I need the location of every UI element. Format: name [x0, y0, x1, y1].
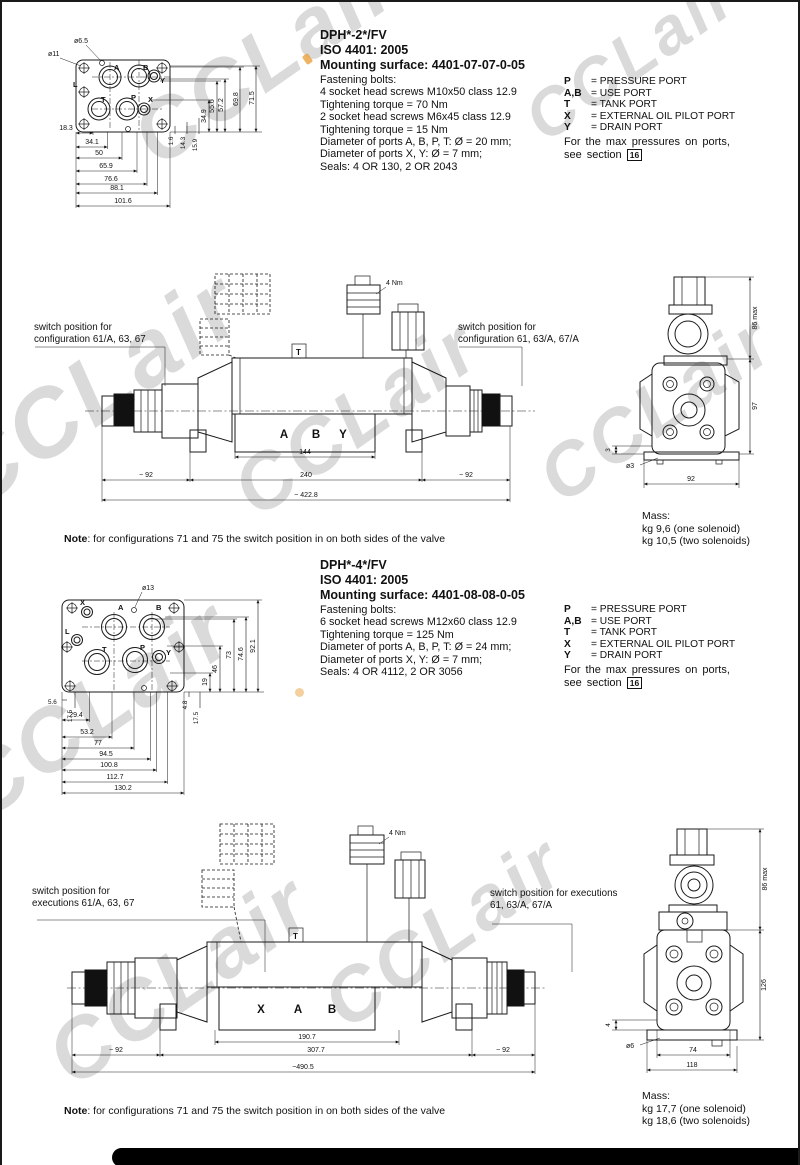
port-letter-T: T — [101, 95, 106, 104]
end-view-body — [640, 363, 739, 464]
dim-126: 126 — [761, 979, 768, 991]
section2-max-pressure-note: For the max pressures on ports, see sect… — [564, 664, 779, 690]
valve-body: T X A B — [177, 928, 452, 1030]
port-letter-Y: Y — [166, 648, 171, 657]
port-key: A,B — [564, 88, 591, 100]
dim-92-right: ~ 92 — [459, 472, 473, 479]
section2-specs: Fastening bolts: 6 socket head screws M1… — [320, 604, 517, 678]
spec-line: Fastening bolts: — [320, 604, 517, 616]
switch-label-line: configuration 61/A, 63, 67 — [34, 334, 146, 346]
spec-line: 6 socket head screws M12x60 class 12.9 — [320, 616, 517, 628]
dim-92-right: ~ 92 — [496, 1047, 510, 1054]
port-letter-L: L — [65, 627, 70, 636]
switch-position-label-left-2: switch position for executions 61/A, 63,… — [32, 886, 134, 909]
dim-65-9: 65.9 — [99, 163, 113, 170]
port-desc: = USE PORT — [591, 616, 652, 627]
torque-label: 4 Nm — [386, 280, 403, 287]
mass-one-solenoid: kg 9,6 (one solenoid) — [642, 523, 750, 536]
body-letter: A — [280, 429, 290, 441]
dim-240: 240 — [300, 472, 312, 479]
din-connector-dashed — [215, 274, 270, 314]
datasheet-page: CCLair CCLair CCLair CCLair CCLair CCLai… — [0, 0, 800, 1165]
dia11-label: ø11 — [48, 51, 60, 58]
legend-row: X= EXTERNAL OIL PILOT PORT — [564, 639, 735, 651]
port-desc: = USE PORT — [591, 88, 652, 99]
dim-15-9: 15.9 — [192, 138, 199, 151]
port-letter-B: B — [143, 63, 149, 72]
port-key: X — [564, 111, 591, 123]
dimensions: 144 240 ~ 92 ~ 92 ~ 422.8 — [102, 426, 510, 502]
spec-line: Seals: 4 OR 130, 2 OR 2043 — [320, 161, 517, 173]
dim-307-7: 307.7 — [307, 1047, 325, 1054]
section1-mass: Mass: kg 9,6 (one solenoid) kg 10,5 (two… — [642, 510, 750, 548]
hole-leaders: ø13 — [135, 585, 154, 607]
manual-override-dashed — [200, 319, 236, 358]
see-section-text: see section — [564, 149, 622, 161]
body-letter: B — [328, 1004, 338, 1016]
solenoid-connector-right — [392, 304, 424, 358]
switch-label-line: executions 61/A, 63, 67 — [32, 898, 134, 910]
dim-29-4: 29.4 — [69, 712, 83, 719]
port-letter-P: P — [131, 93, 136, 102]
dim-57-2: 57.2 — [218, 98, 225, 112]
mounting-surface-drawing-iso4401-08: X A B L T P Y ø13 19 46 73 74. — [42, 582, 312, 807]
port-desc: = DRAIN PORT — [591, 650, 662, 661]
port-letter-T: T — [102, 645, 107, 654]
dim-190-7: 190.7 — [298, 1034, 316, 1041]
switch-leader-right — [492, 924, 572, 972]
dim-101-6: 101.6 — [114, 198, 132, 205]
dim-74: 74 — [689, 1047, 697, 1054]
dim-94-5: 94.5 — [99, 751, 113, 758]
dim-88-1: 88.1 — [110, 185, 124, 192]
legend-row: Y= DRAIN PORT — [564, 650, 735, 662]
dim-118: 118 — [686, 1062, 697, 1069]
coil-plug — [347, 276, 380, 358]
spec-line: Diameter of ports A, B, P, T: Ø = 24 mm; — [320, 641, 517, 653]
switch-label-line: configuration 61, 63/A, 67/A — [458, 334, 579, 346]
port-key: X — [564, 639, 591, 651]
pilot-block-left — [160, 1004, 176, 1030]
max-pressure-line1: For the max pressures on ports, — [564, 136, 779, 149]
iso-standard: ISO 4401: 2005 — [320, 573, 525, 588]
switch-label-line: 61, 63/A, 67/A — [490, 900, 617, 912]
mass-two-solenoids: kg 18,6 (two solenoids) — [642, 1115, 750, 1128]
legend-row: P= PRESSURE PORT — [564, 604, 735, 616]
body-letter: B — [312, 429, 322, 441]
dim-92: 92 — [687, 476, 695, 483]
t-mark: T — [296, 348, 301, 357]
note-bold: Note — [64, 1105, 87, 1117]
dim-53-2: 53.2 — [80, 729, 94, 736]
dim-18-3: 18.3 — [59, 125, 73, 132]
valve-front-view-dph4: 4 Nm T X A B — [27, 814, 577, 1089]
dim-69-8: 69.8 — [233, 92, 240, 106]
switch-label-line: switch position for — [458, 322, 579, 334]
dim-4-8: 4.8 — [182, 700, 189, 709]
section2-title-block: DPH*-4*/FV ISO 4401: 2005 Mounting surfa… — [320, 558, 525, 603]
spec-line: Diameter of ports X, Y: Ø = 7 mm; — [320, 148, 517, 160]
port-key: P — [564, 604, 591, 616]
spec-line: Tightening torque = 125 Nm — [320, 629, 517, 641]
note-text: : for configurations 71 and 75 the switc… — [87, 533, 445, 545]
dim-34-9: 34.9 — [201, 109, 208, 123]
spec-line: Fastening bolts: — [320, 74, 517, 86]
valve-end-view-dph4: 86 max 126 4 ø6 74 118 — [602, 817, 800, 1079]
switch-position-label-right-1: switch position for configuration 61, 63… — [458, 322, 579, 345]
t-mark: T — [293, 932, 298, 941]
torque-leader — [376, 287, 386, 294]
dia13-label: ø13 — [142, 585, 154, 592]
mounting-surface: Mounting surface: 4401-07-07-0-05 — [320, 58, 525, 73]
solenoid-connector-right — [395, 852, 425, 942]
dim-55-6: 55.6 — [209, 99, 216, 113]
port-key: P — [564, 76, 591, 88]
max-pressure-line2: see section 16 — [564, 149, 779, 162]
switch-leader-left — [37, 920, 265, 972]
section1-port-legend: P= PRESSURE PORT A,B= USE PORT T= TANK P… — [564, 76, 735, 134]
section1-max-pressure-note: For the max pressures on ports, see sect… — [564, 136, 779, 162]
note-bold: Note — [64, 533, 87, 545]
dim-490-5: ~490.5 — [292, 1064, 314, 1071]
section2-note: Note: for configurations 71 and 75 the s… — [64, 1105, 445, 1117]
max-pressure-line2: see section 16 — [564, 677, 779, 690]
dim-86max: 86 max — [762, 867, 769, 890]
port-letter-B: B — [156, 603, 162, 612]
horizontal-dimensions: 5.6 17.5 29.4 53.2 77 94.5 100.8 112.7 — [48, 692, 184, 795]
dim-50: 50 — [95, 150, 103, 157]
mounting-surface: Mounting surface: 4401-08-08-0-05 — [320, 588, 525, 603]
port-key: Y — [564, 650, 591, 662]
legend-row: T= TANK PORT — [564, 99, 735, 111]
mounting-plate: X A B L T P Y — [61, 598, 185, 692]
port-key: A,B — [564, 616, 591, 628]
switch-label-line: switch position for — [34, 322, 146, 334]
dim-130-2: 130.2 — [114, 785, 132, 792]
dim-dia6: ø6 — [626, 1043, 634, 1050]
dim-4: 4 — [605, 1023, 612, 1027]
legend-row: A,B= USE PORT — [564, 88, 735, 100]
port-desc: = EXTERNAL OIL PILOT PORT — [591, 639, 735, 650]
manual-override-dashed — [202, 870, 241, 942]
model-title: DPH*-2*/FV — [320, 28, 525, 43]
port-key: T — [564, 99, 591, 111]
section1-specs: Fastening bolts: 4 socket head screws M1… — [320, 74, 517, 173]
spec-line: Tightening torque = 15 Nm — [320, 124, 517, 136]
section-ref-box: 16 — [627, 677, 642, 689]
port-letter-X: X — [148, 95, 153, 104]
legend-row: P= PRESSURE PORT — [564, 76, 735, 88]
solenoid-housing-left — [72, 958, 177, 1018]
valve-front-view-dph2: 4 Nm T A B Y — [30, 266, 565, 516]
dim-14-3: 14.3 — [180, 136, 187, 149]
spec-line: Seals: 4 OR 4112, 2 OR 3056 — [320, 666, 517, 678]
legend-row: Y= DRAIN PORT — [564, 122, 735, 134]
dimensions: 86 max 97 3 ø3 92 — [605, 277, 759, 488]
mass-two-solenoids: kg 10,5 (two solenoids) — [642, 535, 750, 548]
dim-112-7: 112.7 — [107, 774, 124, 781]
legend-row: T= TANK PORT — [564, 627, 735, 639]
iso-standard: ISO 4401: 2005 — [320, 43, 525, 58]
dim-92-left: ~ 92 — [109, 1047, 123, 1054]
body-letter: A — [294, 1004, 304, 1016]
port-desc: = TANK PORT — [591, 627, 657, 638]
mounting-plate: A B Y L T P X — [73, 60, 172, 132]
spec-line: Diameter of ports A, B, P, T: Ø = 20 mm; — [320, 136, 517, 148]
dim-92-left: ~ 92 — [139, 472, 153, 479]
dim-3: 3 — [605, 448, 612, 452]
note-text: : for configurations 71 and 75 the switc… — [87, 1105, 445, 1117]
mass-one-solenoid: kg 17,7 (one solenoid) — [642, 1103, 750, 1116]
port-desc: = TANK PORT — [591, 99, 657, 110]
port-letter-A: A — [118, 603, 124, 612]
section2-mass: Mass: kg 17,7 (one solenoid) kg 18,6 (tw… — [642, 1090, 750, 1128]
switch-label-line: switch position for — [32, 886, 134, 898]
dim-dia3: ø3 — [626, 463, 634, 470]
spec-line: Diameter of ports X, Y: Ø = 7 mm; — [320, 654, 517, 666]
port-letter-Y: Y — [160, 76, 165, 85]
dim-97: 97 — [752, 402, 759, 410]
pilot-block-right — [456, 1004, 472, 1030]
body-letter: X — [257, 1004, 267, 1016]
dim-5-6: 5.6 — [48, 699, 57, 706]
port-key: Y — [564, 122, 591, 134]
spec-line: 4 socket head screws M10x50 class 12.9 — [320, 86, 517, 98]
mass-title: Mass: — [642, 510, 750, 523]
dim-86max: 86 max — [752, 306, 759, 329]
valve-end-view-dph2: 86 max 97 3 ø3 92 — [602, 264, 800, 512]
port-letter-X: X — [80, 598, 85, 607]
dim-34-1: 34.1 — [85, 139, 99, 146]
section1-title-block: DPH*-2*/FV ISO 4401: 2005 Mounting surfa… — [320, 28, 525, 73]
switch-leader-right — [459, 347, 522, 386]
port-letter-A: A — [114, 63, 120, 72]
dim-17-5b: 17.5 — [193, 711, 200, 724]
vertical-dimensions: 34.9 55.6 57.2 69.8 71.5 1.6 14.3 15.9 — [150, 66, 262, 151]
footer-bar — [112, 1148, 798, 1165]
dim-92-1: 92.1 — [250, 639, 257, 653]
dim-77: 77 — [94, 740, 102, 747]
switch-position-label-right-2: switch position for executions 61, 63/A,… — [490, 888, 617, 911]
section-ref-box: 16 — [627, 149, 642, 161]
spec-line: Tightening torque = 70 Nm — [320, 99, 517, 111]
dim-71-5: 71.5 — [249, 91, 256, 105]
coil-plug — [350, 826, 384, 942]
valve-body: T A B Y — [198, 344, 446, 452]
section1-note: Note: for configurations 71 and 75 the s… — [64, 533, 445, 545]
dimensions: 86 max 126 4 ø6 74 118 — [605, 829, 769, 1073]
end-view-body — [644, 930, 743, 1046]
mass-title: Mass: — [642, 1090, 750, 1103]
port-letter-L: L — [73, 80, 78, 89]
port-letter-P: P — [140, 643, 145, 652]
dim-1-6: 1.6 — [168, 136, 175, 145]
dim-422-8: ~ 422.8 — [294, 492, 318, 499]
legend-row: X= EXTERNAL OIL PILOT PORT — [564, 111, 735, 123]
dia6-5-label: ø6.5 — [74, 38, 88, 45]
dim-144: 144 — [299, 449, 311, 456]
din-connector-dashed — [220, 824, 274, 864]
horizontal-dimensions: 18.3 34.1 50 65.9 76.6 88.1 101.6 — [59, 125, 170, 208]
port-key: T — [564, 627, 591, 639]
body-letter: Y — [339, 429, 349, 441]
port-desc: = DRAIN PORT — [591, 122, 662, 133]
watermark-accent — [302, 53, 313, 65]
see-section-text: see section — [564, 677, 622, 689]
mounting-surface-drawing-iso4401-07: A B Y L T P X ø11 ø6.5 34.9 — [42, 30, 302, 220]
dim-19: 19 — [202, 678, 209, 686]
dim-74-6: 74.6 — [238, 647, 245, 661]
section2-port-legend: P= PRESSURE PORT A,B= USE PORT T= TANK P… — [564, 604, 735, 662]
spec-line: 2 socket head screws M6x45 class 12.9 — [320, 111, 517, 123]
model-title: DPH*-4*/FV — [320, 558, 525, 573]
vertical-dimensions: 19 46 73 74.6 92.1 4.8 17.5 — [148, 600, 264, 724]
switch-label-line: switch position for executions — [490, 888, 617, 900]
port-desc: = PRESSURE PORT — [591, 76, 687, 87]
end-view-solenoid — [659, 829, 727, 930]
legend-row: A,B= USE PORT — [564, 616, 735, 628]
hole-leaders: ø11 ø6.5 — [48, 38, 101, 66]
switch-leader-left — [35, 347, 165, 386]
max-pressure-line1: For the max pressures on ports, — [564, 664, 779, 677]
dim-100-8: 100.8 — [100, 762, 118, 769]
dim-73: 73 — [226, 651, 233, 659]
torque-label: 4 Nm — [389, 830, 406, 837]
end-view-solenoid — [664, 277, 727, 365]
dim-46: 46 — [212, 665, 219, 673]
dim-76-6: 76.6 — [104, 176, 118, 183]
port-desc: = PRESSURE PORT — [591, 604, 687, 615]
port-desc: = EXTERNAL OIL PILOT PORT — [591, 111, 735, 122]
switch-position-label-left-1: switch position for configuration 61/A, … — [34, 322, 146, 345]
